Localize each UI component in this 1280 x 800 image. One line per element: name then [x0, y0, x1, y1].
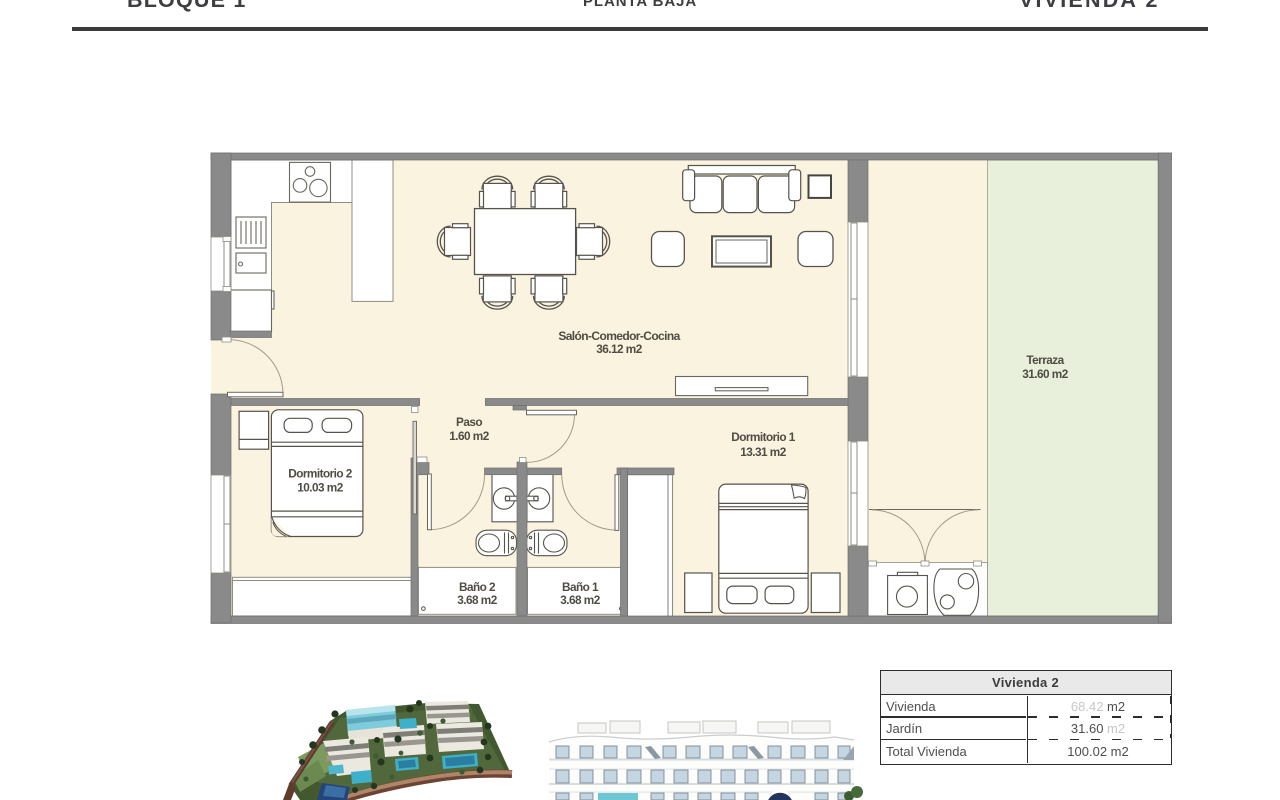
svg-text:1.60 m2: 1.60 m2 — [449, 429, 489, 443]
svg-text:31.60 m2: 31.60 m2 — [1022, 367, 1068, 381]
svg-text:Baño 2: Baño 2 — [459, 580, 496, 594]
svg-text:Paso: Paso — [456, 415, 482, 429]
svg-text:3.68 m2: 3.68 m2 — [457, 593, 497, 607]
svg-text:Dormitorio 1: Dormitorio 1 — [731, 430, 796, 444]
svg-text:Dormitorio 2: Dormitorio 2 — [288, 467, 353, 481]
svg-text:Salón-Comedor-Cocina: Salón-Comedor-Cocina — [558, 329, 680, 343]
svg-text:10.03 m2: 10.03 m2 — [297, 481, 343, 495]
svg-text:3.68 m2: 3.68 m2 — [560, 593, 600, 607]
svg-text:36.12 m2: 36.12 m2 — [596, 342, 642, 356]
svg-text:Baño 1: Baño 1 — [562, 580, 599, 594]
svg-text:Terraza: Terraza — [1026, 353, 1064, 367]
svg-text:13.31 m2: 13.31 m2 — [740, 445, 786, 459]
